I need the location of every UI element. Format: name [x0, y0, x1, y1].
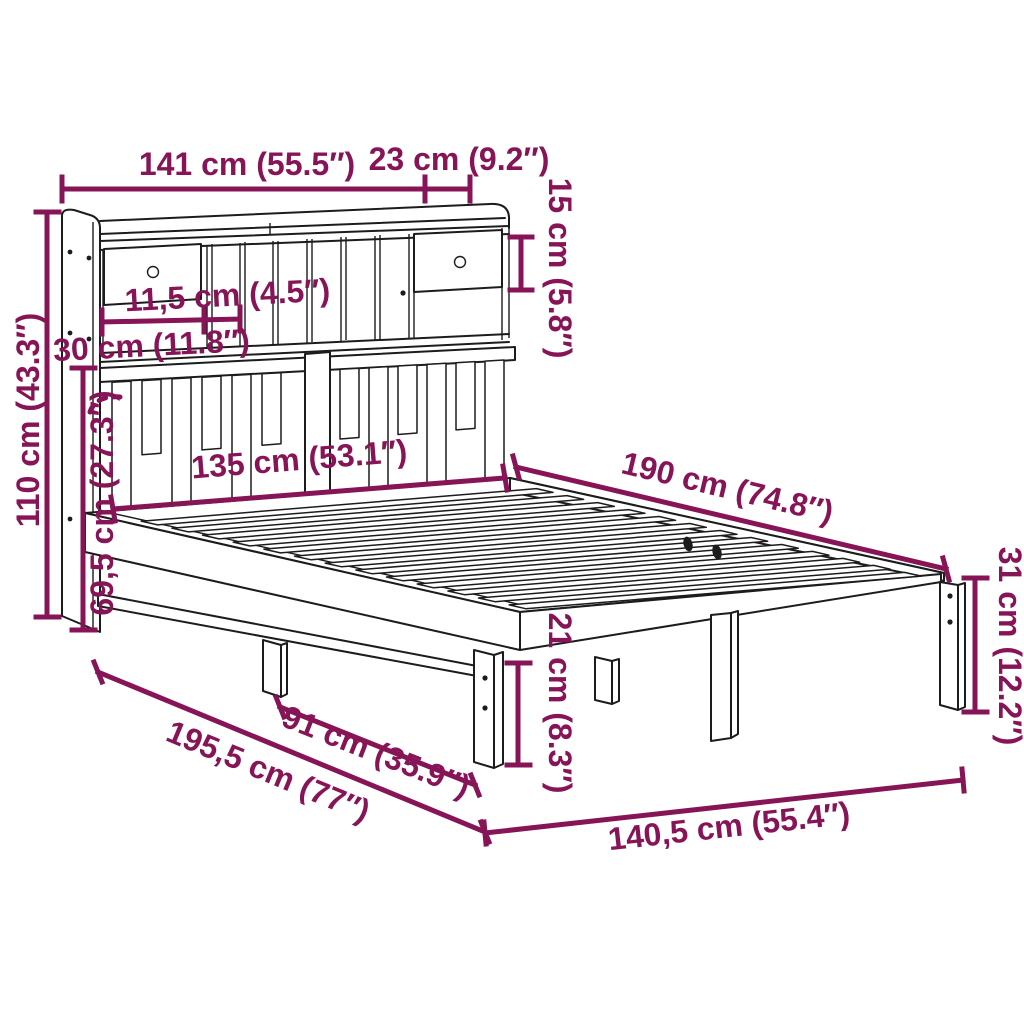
- headboard-slats-board: [262, 373, 281, 446]
- headboard-slats-board: [485, 360, 504, 482]
- right-drawer: [414, 230, 502, 292]
- headboard-slats-board: [172, 378, 191, 507]
- dim-label-headboard-total-width: 141 cm (55.5″): [139, 146, 355, 182]
- dim-label-shelf-opening-height: 15 cm (5.8″): [542, 178, 578, 359]
- corner-leg-front: [474, 650, 503, 768]
- headboard-slats-board: [456, 362, 475, 430]
- headboard-slats-board: [369, 367, 388, 491]
- headboard-slats-board: [427, 363, 446, 486]
- dim-label-under-bed-clearance: 21 cm (8.3″): [542, 613, 578, 794]
- dimension-shelf-opening-height: 15 cm (5.8″): [510, 178, 578, 359]
- diagram-canvas: 141 cm (55.5″) 23 cm (9.2″) 15 cm (5.8″)…: [0, 0, 1024, 1024]
- dimension-total-length: 195,5 cm (77″): [94, 662, 489, 842]
- headboard-slats-board: [340, 368, 359, 439]
- headboard-slats-board: [398, 365, 417, 435]
- headboard-slats-board: [232, 374, 251, 501]
- dim-label-corner-leg-height: 31 cm (12.2″): [992, 547, 1024, 746]
- corner-leg-rear: [940, 582, 965, 710]
- dim-label-headboard-height: 110 cm (43.3″): [10, 313, 46, 528]
- peg-hole: [400, 290, 405, 295]
- dimension-shelf-depth: 23 cm (9.2″): [369, 141, 550, 177]
- bed-dimension-diagram: 141 cm (55.5″) 23 cm (9.2″) 15 cm (5.8″)…: [0, 0, 1024, 1024]
- headboard-slats-board: [202, 376, 221, 450]
- dimension-corner-leg-height: 31 cm (12.2″): [964, 547, 1024, 746]
- dim-label-headboard-lower-height: 69,5 cm (27.3″): [84, 390, 120, 615]
- center-support-leg: [595, 657, 619, 704]
- mid-foot-leg: [711, 611, 738, 741]
- dimension-headboard-height: 110 cm (43.3″): [10, 212, 59, 617]
- dim-label-shelf-depth: 23 cm (9.2″): [369, 141, 550, 177]
- mid-side-leg: [263, 640, 287, 697]
- headboard-slats-board: [142, 380, 161, 455]
